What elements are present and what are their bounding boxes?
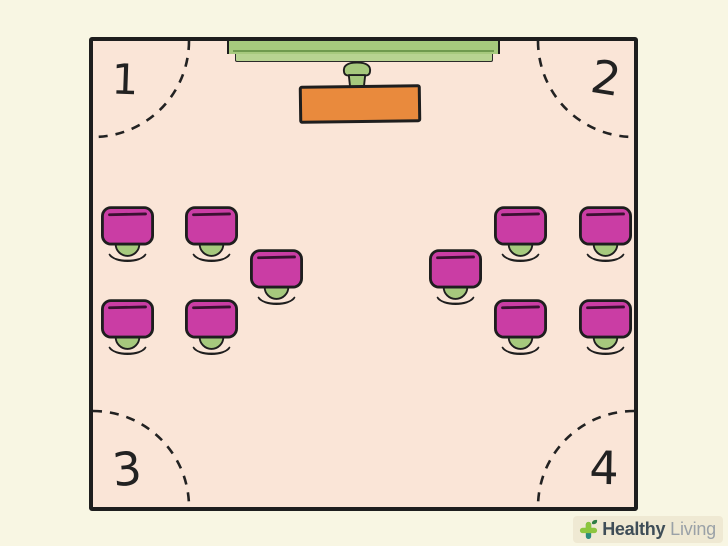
- corner-label-2: 2: [580, 46, 633, 110]
- logo-text-living: Living: [670, 519, 716, 540]
- corner-label-3: 3: [103, 438, 152, 500]
- teacher-desk: [299, 84, 422, 124]
- illustration-canvas: 1 2 3 4: [0, 0, 728, 546]
- logo-text-healthy: Healthy: [602, 519, 665, 540]
- healthy-living-plus-icon: [578, 519, 599, 540]
- healthy-living-logo: Healthy Living: [573, 516, 723, 543]
- corner-label-1: 1: [102, 50, 148, 110]
- teacher-chair: [338, 60, 376, 88]
- chalkboard-shading-line: [233, 50, 494, 53]
- corner-label-4: 4: [581, 439, 626, 498]
- chalkboard: [227, 41, 500, 54]
- leaf-icon: [592, 520, 597, 524]
